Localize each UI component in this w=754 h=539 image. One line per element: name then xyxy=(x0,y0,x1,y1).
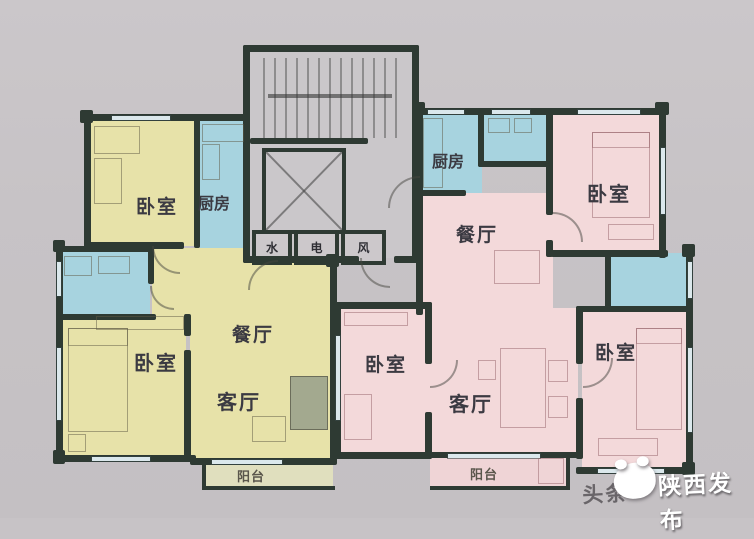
bath-fixture-sketch xyxy=(98,256,130,274)
wall-segment xyxy=(184,350,191,460)
wall-segment xyxy=(194,118,200,248)
kitchen-counter-sketch xyxy=(202,144,220,180)
floor-plan: 水 电 风 xyxy=(0,0,754,518)
wall-segment xyxy=(605,250,611,312)
window xyxy=(92,457,150,461)
watermark: 头条 陕西发布 xyxy=(581,451,754,520)
room-label-balcony-left: 阳台 xyxy=(237,466,265,485)
wall-segment xyxy=(425,302,432,364)
wall-pier xyxy=(80,110,93,123)
stair-rail xyxy=(268,94,392,98)
window xyxy=(661,148,665,214)
table-sketch xyxy=(252,416,286,442)
wall-pier xyxy=(53,240,65,252)
wall-pier xyxy=(53,450,65,464)
room-label-kitchen-left: 厨房 xyxy=(198,190,230,214)
wall-segment xyxy=(416,190,466,196)
room-label-dining-left: 餐厅 xyxy=(232,320,274,347)
room-label-balcony-right: 阳台 xyxy=(470,464,498,483)
wall-segment xyxy=(184,314,191,336)
sofa-sketch xyxy=(478,360,496,380)
room-label-living-left: 客厅 xyxy=(217,386,261,415)
bed-pillow-sketch xyxy=(592,132,650,148)
wardrobe-sketch xyxy=(344,312,408,326)
wall-segment xyxy=(250,138,368,144)
window xyxy=(112,116,170,120)
kitchen-counter-sketch xyxy=(202,124,244,142)
dresser-sketch xyxy=(94,158,122,204)
window xyxy=(336,336,340,420)
staircase xyxy=(254,58,406,138)
wall-segment xyxy=(243,256,359,263)
coffee-table-sketch xyxy=(500,348,546,428)
wall-segment xyxy=(334,302,432,309)
sofa-sketch xyxy=(548,396,568,418)
wall-segment xyxy=(576,398,583,459)
window xyxy=(57,262,61,296)
window xyxy=(578,110,640,114)
balcony-left-rail xyxy=(202,460,206,490)
wall-segment xyxy=(478,161,550,167)
shaft-electric-label: 电 xyxy=(310,239,322,256)
wall-segment xyxy=(243,45,250,263)
dresser-sketch xyxy=(94,126,140,154)
sofa-sketch xyxy=(548,360,568,382)
washer-sketch xyxy=(538,458,564,484)
bath-fixture-sketch xyxy=(488,118,510,133)
window xyxy=(492,110,530,114)
door-arc xyxy=(360,258,390,288)
wardrobe-sketch xyxy=(96,316,184,330)
room-label-bedroom-left: 卧室 xyxy=(134,347,178,376)
bed-pillow-sketch xyxy=(68,328,128,346)
wall-segment xyxy=(605,306,692,312)
tv-cabinet-sketch xyxy=(290,376,328,430)
wardrobe-sketch xyxy=(598,438,658,456)
room-label-bedroom-bottom-right: 卧室 xyxy=(595,338,637,365)
shaft-vent-label: 风 xyxy=(357,239,369,256)
room-label-bedroom-middle: 卧室 xyxy=(365,350,407,377)
wall-segment xyxy=(576,306,583,364)
window xyxy=(212,460,282,464)
watermark-publisher-text: 陕西发布 xyxy=(657,463,754,536)
wall-segment xyxy=(334,452,432,459)
elevator-shaft xyxy=(262,148,346,234)
window xyxy=(688,348,692,432)
window xyxy=(428,110,464,114)
wall-segment xyxy=(478,113,484,167)
window xyxy=(448,454,540,458)
room-label-kitchen-right: 厨房 xyxy=(432,148,464,172)
bed-pillow-sketch xyxy=(636,328,682,344)
room-label-dining-right: 餐厅 xyxy=(456,220,498,247)
balcony-left-rail xyxy=(202,486,335,490)
window xyxy=(688,262,692,298)
elevator-x-icon xyxy=(266,152,342,230)
wall-pier xyxy=(655,102,669,115)
bath-fixture-sketch xyxy=(64,256,92,276)
bath-fixture-sketch xyxy=(344,394,372,440)
wall-pier xyxy=(326,254,339,267)
wall-segment xyxy=(84,114,91,252)
bath-fixture-sketch xyxy=(514,118,532,133)
wall-segment xyxy=(56,246,154,252)
dresser-sketch xyxy=(608,224,654,240)
room-bathroom-right xyxy=(610,253,688,308)
wall-segment xyxy=(243,45,419,52)
window xyxy=(57,348,61,420)
wall-segment xyxy=(416,108,423,315)
shaft-water-label: 水 xyxy=(266,239,278,256)
wall-pier xyxy=(682,244,695,257)
wall-pier xyxy=(412,102,425,115)
room-label-bedroom-top-left: 卧室 xyxy=(136,192,178,219)
balcony-right-rail xyxy=(430,486,570,490)
nightstand-sketch xyxy=(68,434,86,452)
room-label-living-right: 客厅 xyxy=(449,388,493,417)
dining-table-sketch xyxy=(494,250,540,284)
balcony-right-rail xyxy=(566,456,570,488)
room-label-bedroom-top-right: 卧室 xyxy=(587,178,631,207)
wall-segment xyxy=(546,113,553,215)
